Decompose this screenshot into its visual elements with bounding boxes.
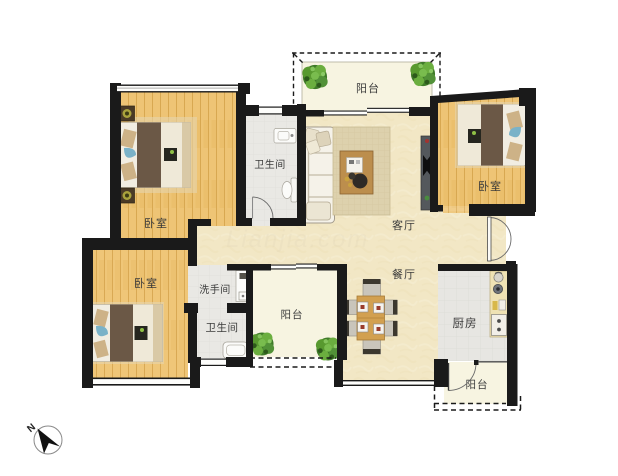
svg-text:Lianjia.com: Lianjia.com (226, 226, 369, 253)
svg-text:卧室: 卧室 (134, 276, 158, 290)
svg-text:卫生间: 卫生间 (206, 321, 239, 334)
svg-text:客厅: 客厅 (392, 218, 416, 232)
svg-text:阳台: 阳台 (356, 81, 380, 95)
svg-text:洗手间: 洗手间 (199, 283, 231, 296)
svg-text:卧室: 卧室 (478, 179, 502, 193)
svg-text:厨房: 厨房 (453, 317, 478, 330)
svg-text:卫生间: 卫生间 (254, 158, 286, 171)
svg-text:阳台: 阳台 (466, 378, 489, 391)
svg-text:餐厅: 餐厅 (392, 267, 416, 281)
svg-text:阳台: 阳台 (281, 308, 304, 321)
svg-text:卧室: 卧室 (144, 216, 168, 230)
